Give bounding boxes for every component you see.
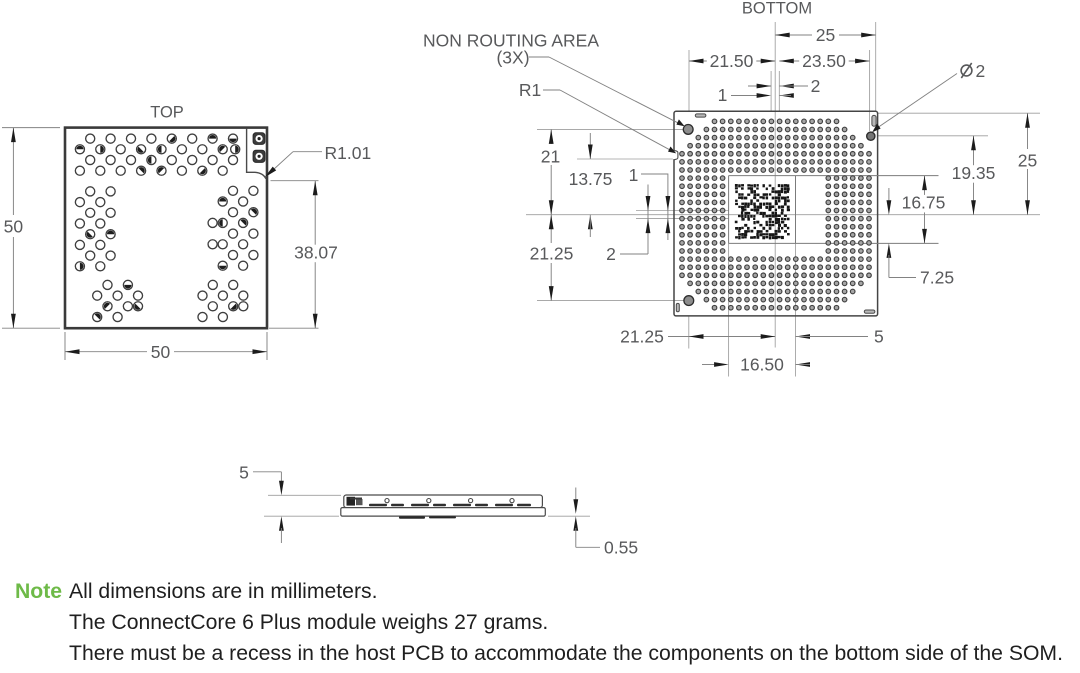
svg-text:50: 50 — [151, 342, 171, 362]
svg-text:There must be a recess in the: There must be a recess in the host PCB t… — [69, 642, 1063, 665]
svg-text:38.07: 38.07 — [294, 242, 338, 262]
svg-text:TOP: TOP — [150, 104, 184, 122]
svg-text:All dimensions are in millimet: All dimensions are in millimeters. — [69, 580, 378, 603]
svg-text:0.55: 0.55 — [604, 538, 638, 558]
svg-text:R1.01: R1.01 — [325, 143, 372, 163]
svg-text:1: 1 — [718, 85, 728, 105]
svg-text:R1: R1 — [519, 80, 541, 100]
svg-text:21: 21 — [541, 147, 560, 167]
svg-text:13.75: 13.75 — [569, 169, 613, 189]
svg-text:The ConnectCore 6 Plus module: The ConnectCore 6 Plus module weighs 27 … — [69, 611, 548, 634]
svg-text:23.50: 23.50 — [802, 51, 846, 71]
svg-text:50: 50 — [4, 217, 24, 237]
svg-text:2: 2 — [976, 61, 986, 81]
svg-text:21.50: 21.50 — [710, 51, 754, 71]
svg-text:(3X): (3X) — [496, 48, 529, 68]
svg-text:16.50: 16.50 — [740, 355, 784, 375]
svg-text:BOTTOM: BOTTOM — [742, 0, 812, 18]
svg-text:19.35: 19.35 — [952, 163, 996, 183]
svg-text:Note: Note — [15, 580, 62, 603]
svg-text:5: 5 — [874, 327, 884, 347]
svg-text:5: 5 — [239, 463, 249, 483]
svg-text:25: 25 — [1018, 151, 1037, 171]
svg-text:2: 2 — [606, 244, 616, 264]
svg-text:1: 1 — [629, 165, 639, 185]
svg-text:21.25: 21.25 — [620, 327, 664, 347]
svg-text:7.25: 7.25 — [920, 268, 954, 288]
svg-text:25: 25 — [816, 25, 835, 45]
svg-text:2: 2 — [811, 76, 821, 96]
svg-text:16.75: 16.75 — [902, 193, 946, 213]
svg-text:21.25: 21.25 — [530, 244, 574, 264]
